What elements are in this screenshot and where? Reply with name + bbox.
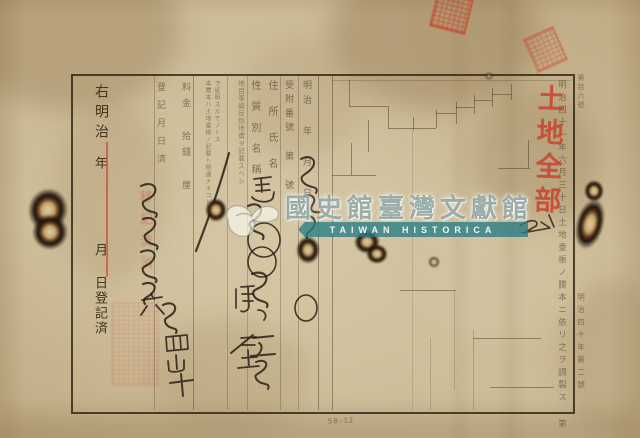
handwriting-entry-center <box>248 177 317 389</box>
burn-hole <box>205 198 227 222</box>
burn-hole <box>428 256 440 268</box>
handwriting-scribble-right <box>520 215 554 233</box>
handwriting-slash <box>196 153 253 353</box>
burn-hole <box>485 72 493 80</box>
pencil-note: 58-12 <box>328 416 354 425</box>
handwriting-ink <box>0 0 640 438</box>
burn-hole <box>296 236 320 264</box>
document-scan: 右明治 年 月 日登記済 移記済消 登記月日済 料金 拾錢 厘 本謄本ハ土地臺帳… <box>0 0 640 438</box>
handwriting-entry-left <box>141 184 193 396</box>
handwriting-entry-right <box>301 157 320 238</box>
burn-hole <box>366 244 388 264</box>
